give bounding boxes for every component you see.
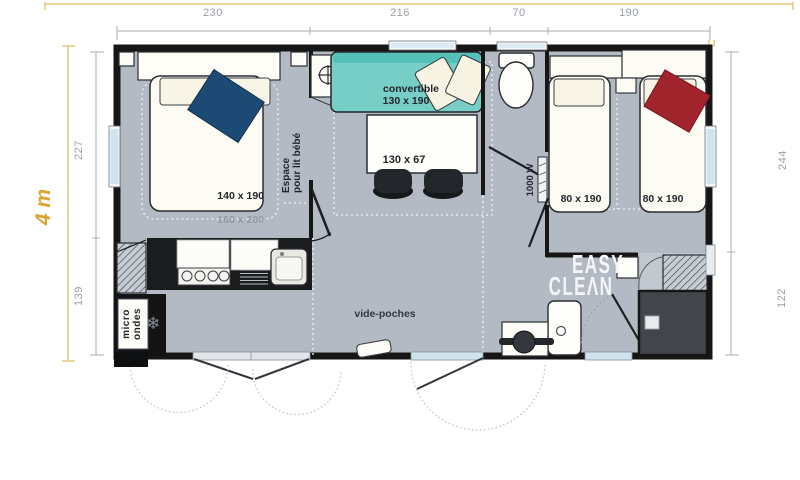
twin-bed-right-size-label: 80 x 190 — [627, 194, 699, 205]
dim-top-2: 216 — [352, 8, 448, 20]
door-swing-arc — [130, 362, 228, 413]
window-icon — [585, 352, 632, 360]
toilet-icon — [499, 62, 533, 108]
baby-space-label: Espace pour lit bébé — [282, 101, 308, 193]
french-door-sill — [193, 352, 310, 360]
dim-top-4: 190 — [581, 8, 677, 20]
door-swing-arc — [411, 362, 545, 430]
dim-left-2: 139 — [74, 246, 94, 346]
baby-space-line1: Espace — [282, 101, 293, 193]
exterior-openings — [114, 352, 632, 430]
basin-bowl-icon — [513, 331, 535, 353]
sofa-size-label: 130 x 190 — [371, 96, 441, 107]
entrance-door-sill — [411, 352, 483, 360]
french-door-leaf — [194, 359, 253, 379]
hob-icon — [178, 268, 230, 285]
dim-top-3: 70 — [471, 8, 567, 20]
dim-right-1: 244 — [778, 110, 798, 210]
dim-right-2: 122 — [777, 248, 797, 348]
gas-locker-icon — [114, 352, 148, 367]
master-bed-size-label: 140 x 190 — [192, 191, 264, 202]
master-bed-outer-size-label: 160 x 200 — [192, 215, 264, 226]
cabinet-icon — [177, 240, 229, 268]
entrance-door-leaf — [417, 358, 483, 389]
microwave-line2: ondes — [133, 294, 144, 354]
window-icon — [706, 245, 715, 275]
easyclean-logo-line2: CLEΛN — [545, 275, 617, 302]
shelf-icon — [550, 56, 624, 78]
heater-power-label: 1000 W — [526, 155, 540, 205]
technical-box-icon — [645, 316, 659, 329]
table-size-label: 130 x 67 — [368, 155, 440, 167]
sofa-label: convertible — [376, 84, 446, 95]
wardrobe-post-icon — [119, 52, 134, 66]
wardrobe-hatch-icon — [663, 255, 707, 291]
floorplan-page: 230 216 70 190 227 139 4 m 244 122 140 x… — [0, 0, 800, 480]
drain-icon — [557, 327, 566, 336]
microwave-label: micro ondes — [122, 294, 144, 354]
nightstand-icon — [616, 78, 636, 93]
pocket-shelf-label: vide-poches — [340, 309, 430, 320]
french-door-leaf — [255, 359, 309, 379]
wardrobe-post-icon — [291, 52, 307, 66]
floorplan-graphic — [0, 0, 800, 480]
dim-left-1: 227 — [74, 100, 94, 200]
chair-icon — [424, 169, 463, 193]
sofa-backrest — [333, 53, 480, 63]
freezer-snowflake-icon: ❄ — [146, 315, 160, 333]
baby-space-line2: pour lit bébé — [293, 101, 304, 193]
overall-width-label: 4 m — [33, 157, 57, 257]
twin-bed-left-size-label: 80 x 190 — [545, 194, 617, 205]
bed-pillow-icon — [554, 79, 604, 106]
microwave-line1: micro — [122, 294, 133, 354]
chair-icon — [374, 169, 412, 193]
dim-top-1: 230 — [165, 8, 261, 20]
